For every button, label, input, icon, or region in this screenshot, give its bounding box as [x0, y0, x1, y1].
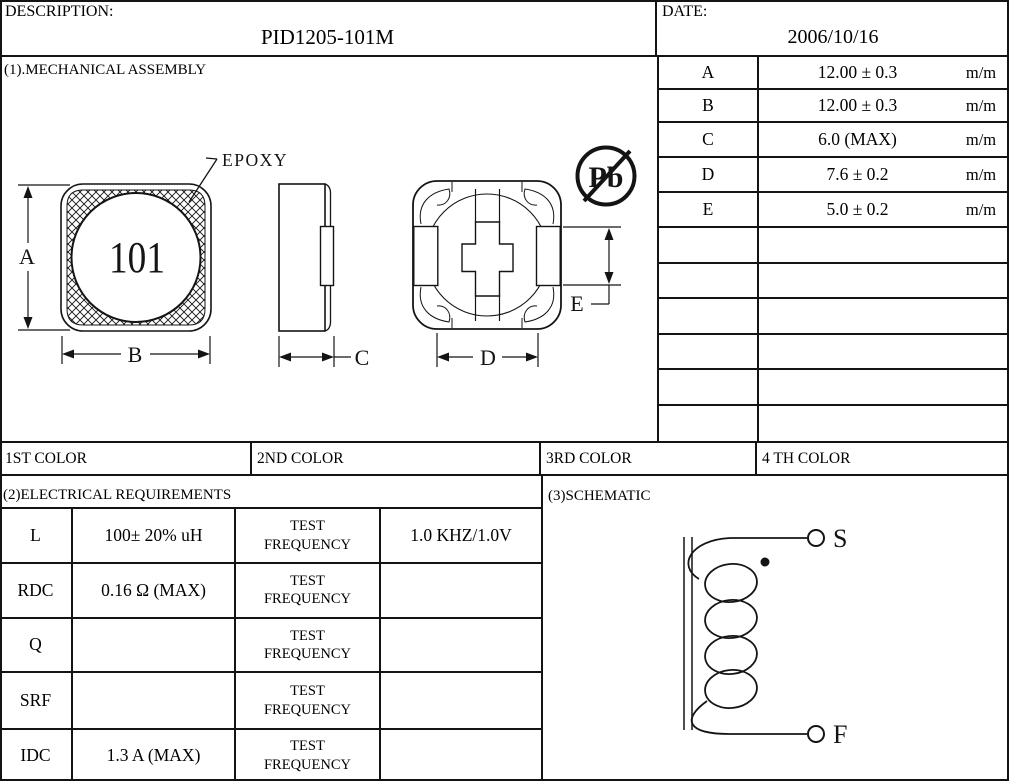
color-cell-3rd: 3RD COLOR [541, 443, 757, 474]
elec-condition [381, 564, 541, 617]
elec-test-text: TEST FREQUENCY [258, 737, 358, 773]
color-cell-2nd: 2ND COLOR [252, 443, 541, 474]
inductor-coil [688, 538, 807, 734]
date-cell: DATE: 2006/10/16 [657, 0, 1009, 57]
epoxy-leader-tick [206, 158, 217, 159]
dim-value: 7.6 ± 0.2 [759, 164, 956, 185]
electrical-title-text: (2)ELECTRICAL REQUIREMENTS [3, 487, 231, 504]
dim-unit: m/m [956, 63, 1006, 83]
dim-key: C [659, 123, 759, 156]
elec-condition [381, 619, 541, 672]
pb-free-icon: Pb [578, 148, 635, 205]
dim-a-label: A [19, 244, 35, 269]
dim-unit: m/m [956, 96, 1006, 116]
elec-param: RDC [0, 564, 73, 617]
dim-key: B [659, 90, 759, 121]
date-label: DATE: [662, 3, 707, 21]
elec-param: L [0, 509, 73, 562]
dim-row-empty [659, 299, 1009, 335]
dim-unit: m/m [956, 165, 1006, 185]
dim-key [659, 228, 759, 262]
front-view: 101 EPOXY A B [18, 150, 288, 367]
elec-row-srf: SRF TEST FREQUENCY [0, 673, 541, 730]
elec-row-rdc: RDC 0.16 Ω (MAX) TEST FREQUENCY [0, 564, 541, 619]
terminal-s-label: S [833, 524, 847, 553]
electrical-section-title: (2)ELECTRICAL REQUIREMENTS [0, 476, 541, 509]
dim-row-empty [659, 228, 1009, 264]
epoxy-leader-line [189, 159, 217, 202]
terminal-s [808, 530, 824, 546]
dim-value: 12.00 ± 0.3 [759, 62, 956, 83]
elec-test-label: TEST FREQUENCY [236, 509, 381, 562]
dim-b-label: B [128, 342, 143, 367]
dim-key [659, 299, 759, 333]
dim-key [659, 370, 759, 404]
elec-value: 0.16 Ω (MAX) [73, 564, 236, 617]
arrow-d-left [437, 353, 449, 362]
arrow-c-right [322, 353, 334, 362]
part-marking: 101 [109, 233, 165, 282]
color-row: 1ST COLOR 2ND COLOR 3RD COLOR 4 TH COLOR [0, 441, 1009, 476]
elec-test-label: TEST FREQUENCY [236, 564, 381, 617]
polarity-dot [761, 558, 770, 567]
elec-test-text: TEST FREQUENCY [258, 572, 358, 608]
color-cell-1st: 1ST COLOR [0, 443, 252, 474]
elec-param: Q [0, 619, 73, 672]
elec-condition [381, 673, 541, 728]
dim-d-label: D [480, 345, 496, 370]
schematic-drawing: S F [543, 476, 1009, 779]
dim-key [659, 406, 759, 442]
color-cell-4th: 4 TH COLOR [757, 443, 1009, 474]
arrow-b-right [198, 350, 210, 359]
datasheet-page: DESCRIPTION: PID1205-101M DATE: 2006/10/… [0, 0, 1009, 781]
elec-test-label: TEST FREQUENCY [236, 730, 381, 781]
dim-row-c: C 6.0 (MAX)m/m [659, 123, 1009, 158]
mechanical-section-title: (1).MECHANICAL ASSEMBLY [4, 62, 206, 79]
arrow-a-bottom [24, 317, 33, 329]
elec-test-text: TEST FREQUENCY [258, 517, 358, 553]
dim-c-label: C [355, 345, 370, 370]
dim-row-empty [659, 335, 1009, 371]
dim-value: 5.0 ± 0.2 [759, 199, 956, 220]
elec-condition: 1.0 KHZ/1.0V [381, 509, 541, 562]
elec-param: IDC [0, 730, 73, 781]
epoxy-label: EPOXY [222, 150, 288, 170]
cross-slot [462, 222, 513, 296]
elec-test-label: TEST FREQUENCY [236, 673, 381, 728]
dim-key: A [659, 57, 759, 88]
elec-test-label: TEST FREQUENCY [236, 619, 381, 672]
elec-row-q: Q TEST FREQUENCY [0, 619, 541, 674]
elec-value [73, 619, 236, 672]
elec-param: SRF [0, 673, 73, 728]
dim-key: E [659, 193, 759, 226]
elec-test-text: TEST FREQUENCY [258, 682, 358, 718]
elec-test-text: TEST FREQUENCY [258, 627, 358, 663]
terminal-f-label: F [833, 720, 847, 749]
elec-value: 1.3 A (MAX) [73, 730, 236, 781]
pad-right [537, 227, 561, 286]
dim-row-d: D 7.6 ± 0.2m/m [659, 158, 1009, 193]
dim-row-e: E 5.0 ± 0.2m/m [659, 193, 1009, 228]
dim-key: D [659, 158, 759, 191]
dim-unit: m/m [956, 200, 1006, 220]
dim-row-empty [659, 264, 1009, 300]
dim-row-empty [659, 370, 1009, 406]
dim-row-a: A 12.00 ± 0.3m/m [659, 57, 1009, 90]
terminal-f [808, 726, 824, 742]
arrow-c-left [279, 353, 291, 362]
dim-unit: m/m [956, 130, 1006, 150]
dim-key [659, 335, 759, 369]
dim-e-label: E [570, 291, 583, 316]
elec-value: 100± 20% uH [73, 509, 236, 562]
elec-condition [381, 730, 541, 781]
arrow-d-right [526, 353, 538, 362]
electrical-table: L 100± 20% uH TEST FREQUENCY 1.0 KHZ/1.0… [0, 509, 541, 781]
dim-value: 6.0 (MAX) [759, 129, 956, 150]
dim-value: 12.00 ± 0.3 [759, 95, 956, 116]
schematic-section: (3)SCHEMATIC S F [541, 476, 1009, 781]
arrow-b-left [62, 350, 74, 359]
elec-row-l: L 100± 20% uH TEST FREQUENCY 1.0 KHZ/1.0… [0, 509, 541, 564]
side-tab [321, 227, 334, 286]
dim-key [659, 264, 759, 298]
arrow-e-top [605, 228, 614, 240]
side-view: C [279, 184, 369, 370]
dim-row-empty [659, 406, 1009, 442]
bottom-view: D E [413, 181, 621, 370]
arrow-e-bottom [605, 272, 614, 284]
arrow-a-top [24, 186, 33, 198]
pad-left [414, 227, 438, 286]
elec-row-idc: IDC 1.3 A (MAX) TEST FREQUENCY [0, 730, 541, 781]
dimension-table: A 12.00 ± 0.3m/m B 12.00 ± 0.3m/m C 6.0 … [657, 57, 1009, 441]
elec-value [73, 673, 236, 728]
dim-row-b: B 12.00 ± 0.3m/m [659, 90, 1009, 123]
dimension-c [279, 336, 351, 367]
date-value: 2006/10/16 [657, 26, 1009, 49]
side-body [279, 184, 325, 331]
